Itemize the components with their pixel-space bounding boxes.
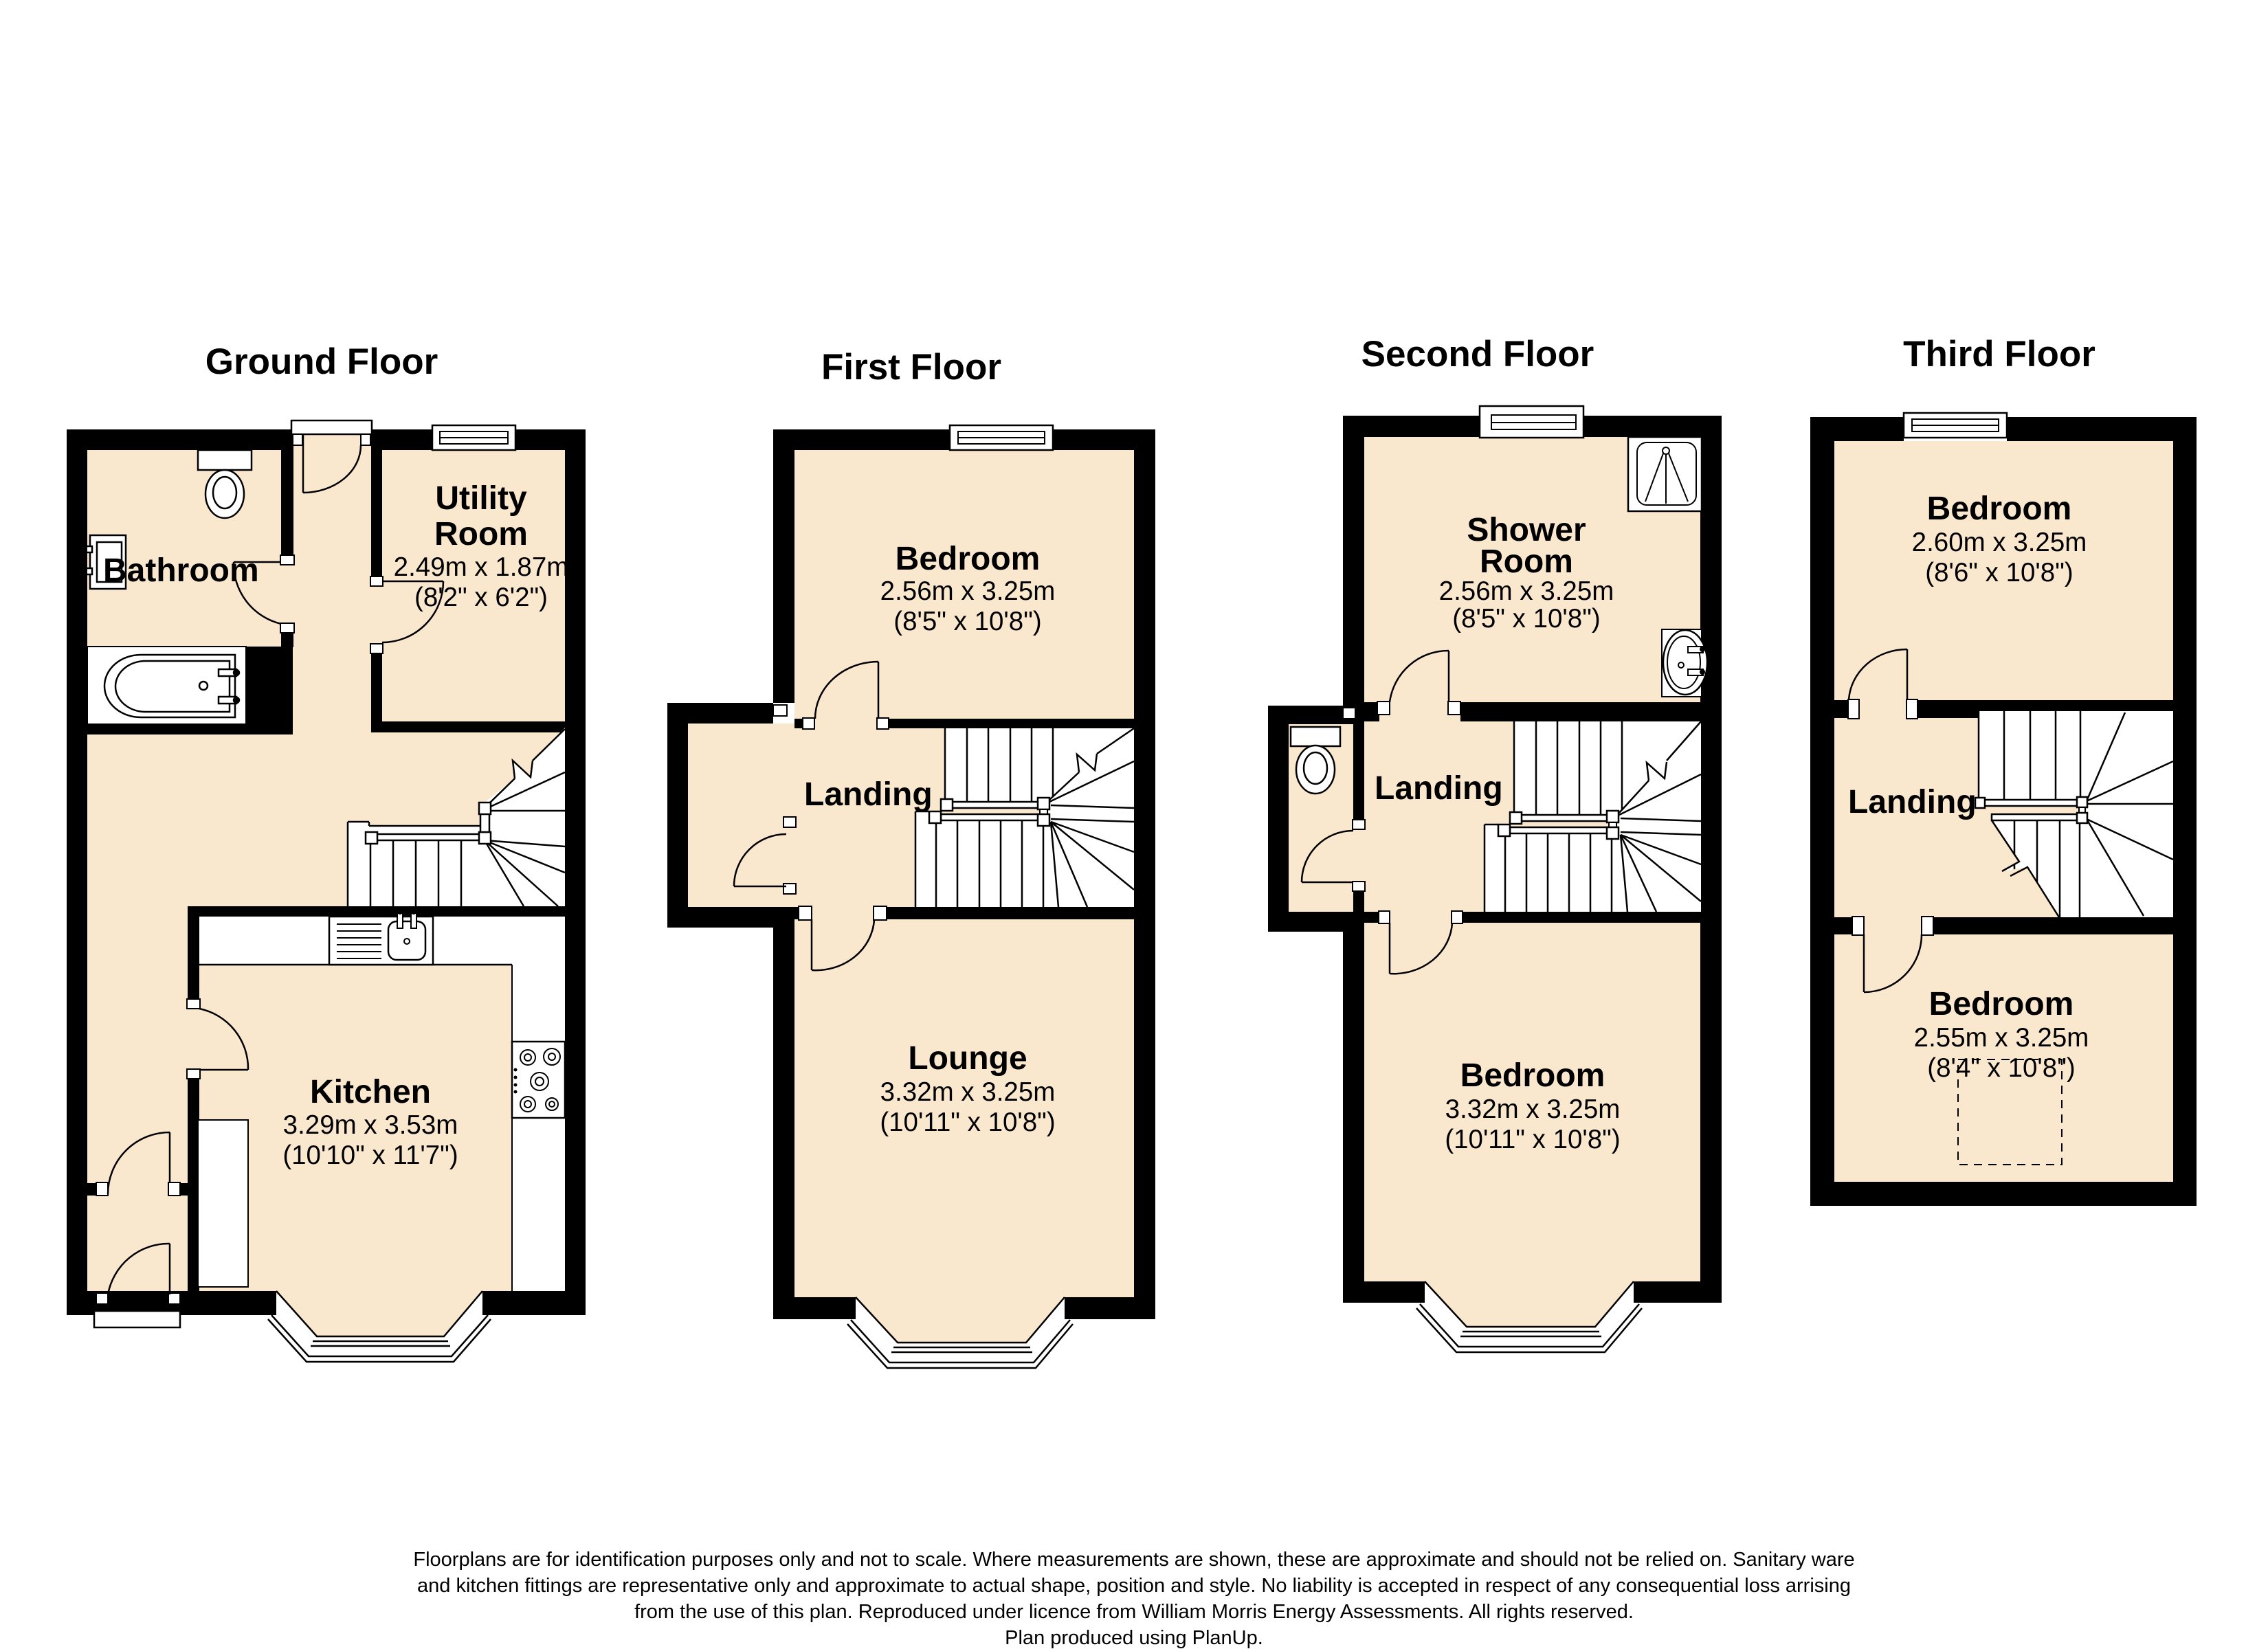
svg-text:2.56m x 3.25m: 2.56m x 3.25m <box>1439 576 1614 606</box>
svg-text:Plan produced using PlanUp.: Plan produced using PlanUp. <box>1005 1627 1263 1649</box>
svg-text:2.60m x 3.25m: 2.60m x 3.25m <box>1912 528 2087 557</box>
svg-text:Room: Room <box>1480 543 1573 580</box>
svg-text:(8'4" x 10'8"): (8'4" x 10'8") <box>1927 1053 2075 1083</box>
svg-text:and kitchen fittings are repre: and kitchen fittings are representative … <box>417 1575 1851 1597</box>
svg-text:Bedroom: Bedroom <box>896 541 1041 577</box>
svg-text:Kitchen: Kitchen <box>310 1074 431 1110</box>
svg-text:Landing: Landing <box>1848 784 1977 820</box>
svg-text:Bedroom: Bedroom <box>1460 1057 1605 1094</box>
svg-text:Room: Room <box>434 516 528 552</box>
svg-text:2.49m x 1.87m: 2.49m x 1.87m <box>394 552 569 582</box>
svg-text:2.55m x 3.25m: 2.55m x 3.25m <box>1914 1023 2089 1053</box>
svg-text:from the use of this plan. Rep: from the use of this plan. Reproduced un… <box>634 1601 1634 1623</box>
svg-text:2.56m x 3.25m: 2.56m x 3.25m <box>880 576 1056 606</box>
svg-text:3.32m x 3.25m: 3.32m x 3.25m <box>1445 1095 1621 1124</box>
svg-text:Landing: Landing <box>804 776 933 813</box>
svg-text:Third Floor: Third Floor <box>1903 334 2095 374</box>
svg-text:(8'5" x 10'8"): (8'5" x 10'8") <box>893 607 1041 636</box>
svg-text:3.32m x 3.25m: 3.32m x 3.25m <box>880 1077 1056 1107</box>
svg-text:Utility: Utility <box>435 480 527 517</box>
svg-text:Lounge: Lounge <box>908 1040 1027 1077</box>
svg-text:Second Floor: Second Floor <box>1361 334 1594 374</box>
svg-text:(10'11" x 10'8"): (10'11" x 10'8") <box>880 1108 1055 1137</box>
svg-text:(10'11" x 10'8"): (10'11" x 10'8") <box>1445 1125 1620 1154</box>
svg-text:Bedroom: Bedroom <box>1927 491 2072 527</box>
svg-text:Bedroom: Bedroom <box>1929 986 2074 1022</box>
svg-text:Landing: Landing <box>1375 770 1503 807</box>
svg-text:Bathroom: Bathroom <box>103 552 259 589</box>
svg-text:(10'10" x 11'7"): (10'10" x 11'7") <box>282 1141 458 1170</box>
svg-text:First Floor: First Floor <box>821 347 1001 388</box>
svg-text:Floorplans are for identificat: Floorplans are for identification purpos… <box>413 1549 1854 1571</box>
svg-text:(8'2" x 6'2"): (8'2" x 6'2") <box>414 583 548 612</box>
svg-text:(8'5" x 10'8"): (8'5" x 10'8") <box>1452 604 1600 633</box>
svg-text:(8'6" x 10'8"): (8'6" x 10'8") <box>1925 558 2073 587</box>
svg-text:3.29m x 3.53m: 3.29m x 3.53m <box>283 1110 458 1140</box>
svg-text:Ground Floor: Ground Floor <box>205 341 438 382</box>
